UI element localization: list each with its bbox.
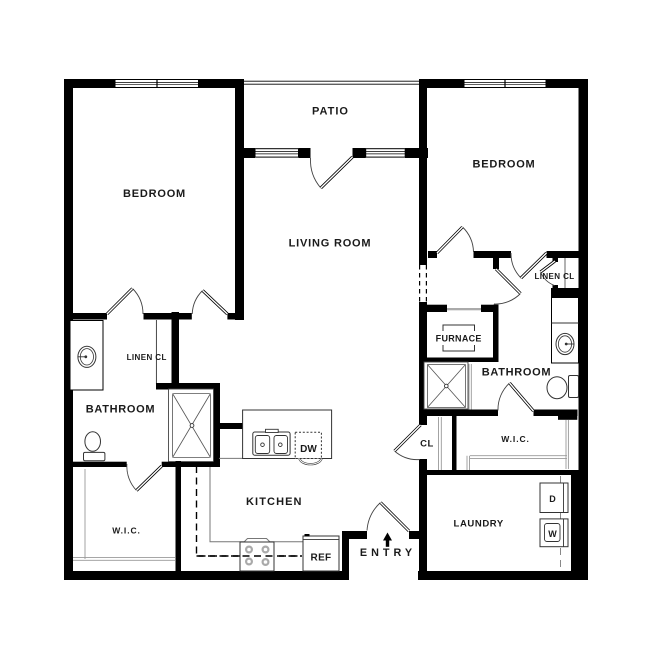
svg-text:CL: CL — [420, 439, 434, 450]
svg-text:LINEN CL: LINEN CL — [534, 272, 574, 281]
svg-text:ENTRY: ENTRY — [360, 547, 416, 559]
svg-text:FURNACE: FURNACE — [436, 334, 482, 344]
svg-text:LINEN CL: LINEN CL — [127, 353, 167, 362]
svg-text:BEDROOM: BEDROOM — [472, 159, 535, 171]
svg-text:BATHROOM: BATHROOM — [482, 367, 552, 379]
svg-text:W.I.C.: W.I.C. — [112, 526, 141, 536]
svg-text:BEDROOM: BEDROOM — [123, 188, 186, 200]
svg-text:LAUNDRY: LAUNDRY — [454, 519, 504, 530]
svg-text:LIVING ROOM: LIVING ROOM — [289, 238, 372, 250]
svg-text:PATIO: PATIO — [312, 106, 349, 118]
svg-text:BATHROOM: BATHROOM — [86, 404, 156, 416]
svg-text:D: D — [549, 494, 556, 504]
svg-text:REF: REF — [311, 553, 332, 564]
svg-text:W: W — [548, 529, 557, 539]
svg-text:DW: DW — [300, 444, 317, 455]
svg-text:W.I.C.: W.I.C. — [501, 434, 530, 444]
svg-text:KITCHEN: KITCHEN — [246, 496, 303, 508]
